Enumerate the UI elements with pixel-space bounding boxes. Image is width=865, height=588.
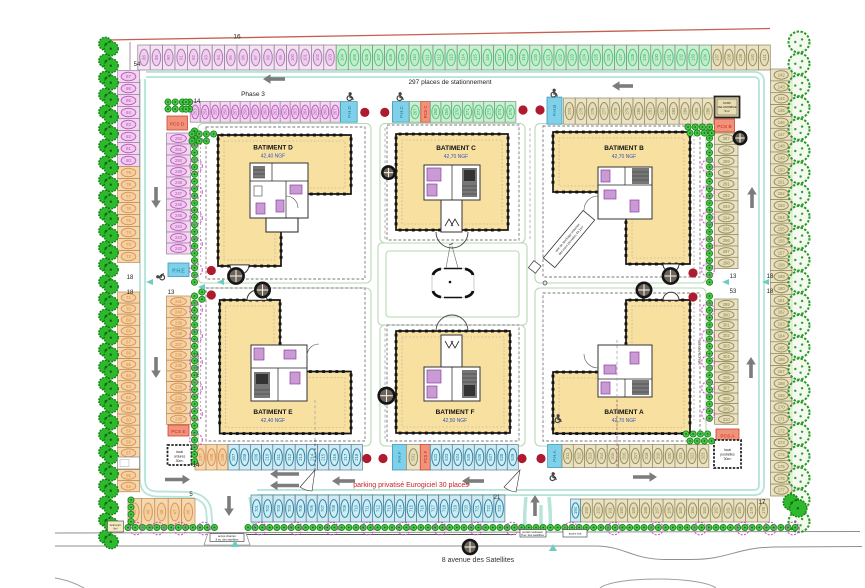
svg-text:232: 232	[175, 395, 183, 400]
svg-text:311: 311	[565, 452, 570, 459]
svg-text:121: 121	[545, 53, 550, 61]
svg-text:722: 722	[486, 504, 491, 512]
svg-text:214: 214	[309, 453, 314, 461]
svg-text:211: 211	[276, 453, 281, 460]
svg-text:720: 720	[464, 504, 469, 512]
svg-text:102: 102	[315, 53, 320, 61]
svg-text:53: 53	[730, 289, 737, 295]
svg-text:141: 141	[762, 53, 767, 61]
svg-text:106: 106	[364, 53, 369, 61]
svg-text:BATIMENT C: BATIMENT C	[436, 145, 476, 152]
svg-text:280: 280	[636, 107, 641, 115]
svg-text:VELOS ROUTE: VELOS ROUTE	[196, 352, 200, 378]
svg-text:212: 212	[287, 453, 292, 461]
svg-text:712: 712	[375, 504, 380, 512]
svg-text:238: 238	[209, 453, 214, 461]
svg-text:accès nuit: accès nuit	[569, 532, 582, 536]
svg-text:297 places de stationnement: 297 places de stationnement	[408, 79, 491, 86]
svg-text:705: 705	[298, 504, 303, 512]
svg-text:160: 160	[778, 286, 786, 291]
svg-text:Phase 3: Phase 3	[241, 91, 265, 98]
svg-text:16: 16	[233, 34, 241, 41]
svg-text:17: 17	[759, 500, 766, 506]
svg-text:P.H.C: P.H.C	[399, 105, 404, 117]
svg-text:BATIMENT F: BATIMENT F	[436, 409, 475, 416]
svg-text:181: 181	[725, 506, 730, 514]
svg-text:103: 103	[327, 53, 332, 61]
svg-text:262: 262	[283, 108, 288, 116]
svg-text:314: 314	[599, 452, 604, 460]
svg-text:233: 233	[175, 385, 183, 390]
svg-text:13: 13	[730, 274, 737, 280]
svg-text:81: 81	[126, 146, 131, 151]
svg-text:147: 147	[778, 132, 786, 137]
svg-text:42,40 NGF: 42,40 NGF	[261, 154, 285, 160]
svg-text:260: 260	[263, 108, 268, 116]
svg-text:142: 142	[778, 73, 786, 78]
svg-text:74: 74	[126, 230, 131, 235]
svg-text:PCS C: PCS C	[423, 106, 428, 119]
svg-text:98: 98	[265, 55, 270, 60]
svg-text:529: 529	[510, 453, 515, 461]
svg-text:285: 285	[694, 107, 699, 115]
svg-text:301: 301	[723, 323, 731, 328]
svg-text:157: 157	[778, 250, 786, 255]
svg-text:183: 183	[702, 506, 707, 514]
svg-text:261: 261	[273, 108, 278, 116]
svg-text:193: 193	[584, 506, 589, 514]
svg-text:133: 133	[691, 53, 696, 61]
svg-text:163: 163	[778, 322, 786, 327]
svg-text:312: 312	[576, 452, 581, 460]
svg-text:127: 127	[618, 53, 623, 61]
svg-text:84: 84	[126, 110, 131, 115]
svg-text:299: 299	[723, 302, 731, 307]
svg-text:94: 94	[216, 55, 221, 60]
svg-text:207: 207	[231, 453, 236, 461]
svg-text:175: 175	[778, 464, 786, 469]
svg-text:322: 322	[689, 452, 694, 460]
svg-text:279: 279	[625, 107, 630, 115]
svg-text:718: 718	[442, 504, 447, 512]
svg-text:236: 236	[175, 353, 183, 358]
svg-text:170: 170	[778, 405, 786, 410]
svg-text:255: 255	[213, 108, 218, 116]
svg-text:64: 64	[126, 373, 131, 378]
svg-text:275: 275	[578, 107, 583, 115]
svg-text:254: 254	[203, 108, 208, 116]
svg-text:303: 303	[723, 344, 731, 349]
svg-text:99: 99	[278, 55, 283, 60]
svg-text:143: 143	[778, 84, 786, 89]
svg-text:703: 703	[276, 504, 281, 512]
svg-text:149: 149	[778, 156, 786, 161]
svg-text:18: 18	[767, 274, 774, 280]
svg-text:209: 209	[253, 453, 258, 461]
svg-text:69: 69	[126, 317, 131, 322]
svg-text:215: 215	[321, 453, 326, 461]
svg-text:P.H.B: P.H.B	[552, 105, 557, 116]
svg-text:85: 85	[126, 98, 131, 103]
svg-text:704: 704	[287, 504, 292, 512]
svg-text:283: 283	[671, 107, 676, 115]
svg-text:276: 276	[590, 107, 595, 115]
svg-text:104: 104	[340, 53, 345, 61]
svg-text:161: 161	[778, 298, 786, 303]
svg-text:5m²: 5m²	[724, 109, 729, 113]
svg-text:80: 80	[126, 158, 131, 163]
svg-text:174: 174	[778, 452, 786, 457]
svg-text:P.H.F: P.H.F	[397, 451, 402, 462]
svg-text:252: 252	[175, 136, 183, 141]
svg-text:525: 525	[466, 453, 471, 461]
svg-text:128: 128	[630, 53, 635, 61]
svg-text:123: 123	[570, 53, 575, 61]
svg-text:270: 270	[454, 108, 459, 116]
svg-text:46: 46	[186, 509, 191, 514]
svg-text:13: 13	[168, 290, 175, 296]
svg-text:295: 295	[723, 227, 731, 232]
svg-text:49: 49	[146, 509, 151, 514]
svg-text:194: 194	[573, 506, 578, 514]
svg-text:208: 208	[242, 453, 247, 461]
svg-text:70: 70	[126, 306, 131, 311]
svg-text:90: 90	[166, 55, 171, 60]
svg-text:18: 18	[127, 290, 134, 296]
svg-text:298: 298	[723, 261, 731, 266]
svg-text:96: 96	[241, 55, 246, 60]
svg-text:706: 706	[309, 504, 314, 512]
svg-text:171: 171	[778, 417, 786, 422]
svg-text:192: 192	[596, 506, 601, 514]
svg-text:54: 54	[134, 62, 141, 68]
svg-text:88: 88	[141, 55, 146, 60]
svg-text:145: 145	[778, 108, 786, 113]
svg-text:61: 61	[126, 406, 131, 411]
svg-text:710: 710	[353, 504, 358, 512]
svg-text:83: 83	[126, 122, 131, 127]
svg-text:319: 319	[655, 452, 660, 460]
svg-text:158: 158	[778, 262, 786, 267]
svg-text:parking privatisé Eurogiciel 3: parking privatisé Eurogiciel 30 places	[353, 482, 469, 489]
svg-text:8 avenue des Satellites: 8 avenue des Satellites	[442, 557, 515, 564]
svg-text:246: 246	[175, 202, 183, 207]
svg-text:275: 275	[508, 108, 513, 116]
svg-text:156: 156	[778, 239, 786, 244]
svg-text:95: 95	[228, 55, 233, 60]
svg-text:152: 152	[778, 191, 786, 196]
svg-text:42,70 NGF: 42,70 NGF	[612, 154, 636, 160]
svg-text:151: 151	[778, 179, 786, 184]
svg-text:BATIMENT A: BATIMENT A	[604, 409, 644, 416]
svg-text:185: 185	[678, 506, 683, 514]
svg-text:249: 249	[175, 169, 183, 174]
svg-text:75: 75	[126, 218, 131, 223]
svg-text:180: 180	[737, 506, 742, 514]
svg-text:87: 87	[126, 74, 131, 79]
svg-text:239: 239	[220, 453, 225, 461]
svg-text:708: 708	[331, 504, 336, 512]
svg-text:258: 258	[243, 108, 248, 116]
svg-text:76: 76	[126, 206, 131, 211]
svg-text:local: local	[724, 448, 731, 452]
svg-text:30m²: 30m²	[176, 459, 185, 463]
svg-text:BATIMENT D: BATIMENT D	[253, 145, 293, 152]
svg-text:179: 179	[749, 506, 754, 514]
svg-text:165: 165	[778, 345, 786, 350]
svg-text:173: 173	[778, 440, 786, 445]
svg-text:230: 230	[175, 417, 183, 422]
svg-text:68: 68	[126, 329, 131, 334]
svg-text:153: 153	[778, 203, 786, 208]
svg-text:702: 702	[265, 504, 270, 512]
svg-text:182: 182	[714, 506, 719, 514]
svg-text:265: 265	[313, 108, 318, 116]
svg-text:522: 522	[433, 453, 438, 461]
svg-text:323: 323	[701, 452, 706, 460]
svg-text:711: 711	[364, 504, 369, 511]
svg-text:306: 306	[723, 375, 731, 380]
svg-text:140: 140	[750, 53, 755, 61]
svg-text:264: 264	[303, 108, 308, 116]
svg-text:62: 62	[126, 395, 131, 400]
svg-text:284: 284	[682, 107, 687, 115]
svg-text:257: 257	[233, 108, 238, 116]
svg-text:155: 155	[778, 227, 786, 232]
svg-text:709: 709	[342, 504, 347, 512]
svg-text:320: 320	[667, 452, 672, 460]
svg-text:63: 63	[126, 384, 131, 389]
svg-text:21: 21	[494, 495, 501, 501]
svg-text:47: 47	[172, 509, 177, 514]
svg-text:307: 307	[723, 385, 731, 390]
svg-text:269: 269	[444, 108, 449, 116]
svg-text:184: 184	[690, 506, 695, 514]
svg-text:243: 243	[175, 235, 183, 240]
svg-text:273: 273	[487, 108, 492, 116]
svg-text:291: 291	[723, 181, 731, 186]
svg-text:177: 177	[778, 488, 786, 493]
svg-text:PCS A: PCS A	[720, 434, 735, 440]
svg-text:238: 238	[175, 331, 183, 336]
svg-text:248: 248	[175, 180, 183, 185]
svg-text:55: 55	[126, 473, 131, 478]
svg-text:263: 263	[293, 108, 298, 116]
svg-text:274: 274	[567, 107, 572, 115]
svg-text:66: 66	[126, 351, 131, 356]
svg-text:292: 292	[723, 193, 731, 198]
svg-text:310: 310	[723, 417, 731, 422]
svg-text:523: 523	[444, 453, 449, 461]
svg-text:130: 130	[654, 53, 659, 61]
svg-text:278: 278	[613, 107, 618, 115]
svg-text:713: 713	[386, 504, 391, 512]
svg-text:148: 148	[778, 144, 786, 149]
svg-text:281: 281	[648, 107, 653, 115]
svg-text:300: 300	[723, 312, 731, 317]
svg-text:240: 240	[175, 310, 183, 315]
svg-text:72: 72	[126, 254, 131, 259]
svg-text:308: 308	[723, 396, 731, 401]
svg-text:309: 309	[723, 406, 731, 411]
svg-text:235: 235	[175, 363, 183, 368]
svg-text:321: 321	[678, 452, 683, 460]
svg-text:67: 67	[126, 340, 131, 345]
svg-text:57: 57	[126, 451, 131, 456]
svg-text:247: 247	[175, 191, 183, 196]
svg-text:77: 77	[126, 194, 131, 199]
svg-text:8m²: 8m²	[113, 528, 117, 531]
svg-text:BATIMENT E: BATIMENT E	[253, 409, 293, 416]
svg-text:316: 316	[622, 452, 627, 460]
svg-text:60: 60	[126, 417, 131, 422]
svg-text:277: 277	[602, 107, 607, 115]
svg-text:178: 178	[761, 506, 766, 514]
svg-text:14: 14	[194, 99, 201, 105]
svg-text:167: 167	[778, 369, 786, 374]
svg-text:109: 109	[400, 53, 405, 61]
svg-text:701: 701	[254, 504, 259, 512]
svg-text:241: 241	[175, 299, 183, 304]
svg-text:169: 169	[778, 393, 786, 398]
svg-text:250: 250	[175, 158, 183, 163]
svg-text:302: 302	[723, 333, 731, 338]
svg-text:114: 114	[461, 53, 466, 60]
svg-text:48: 48	[159, 509, 164, 514]
svg-text:294: 294	[723, 215, 731, 220]
svg-text:79: 79	[126, 170, 131, 175]
svg-text:315: 315	[610, 452, 615, 460]
svg-text:531: 531	[411, 453, 416, 461]
svg-text:59: 59	[126, 428, 131, 433]
svg-text:137: 137	[715, 53, 720, 61]
svg-text:176: 176	[778, 476, 786, 481]
svg-text:189: 189	[631, 506, 636, 514]
svg-text:146: 146	[778, 120, 786, 125]
svg-text:118: 118	[509, 53, 514, 60]
svg-text:524: 524	[455, 453, 460, 461]
svg-text:18: 18	[767, 289, 774, 295]
svg-text:110: 110	[412, 53, 417, 60]
svg-text:188: 188	[643, 506, 648, 514]
svg-text:318: 318	[644, 452, 649, 460]
svg-text:PCS E: PCS E	[171, 429, 185, 435]
svg-text:186: 186	[666, 506, 671, 514]
svg-text:288: 288	[723, 148, 731, 153]
svg-text:216: 216	[332, 453, 337, 461]
svg-text:244: 244	[175, 224, 183, 229]
svg-text:707: 707	[320, 504, 325, 512]
svg-text:129: 129	[642, 53, 647, 61]
svg-text:120: 120	[533, 53, 538, 61]
svg-text:PCS F: PCS F	[423, 450, 428, 463]
svg-text:719: 719	[453, 504, 458, 512]
svg-text:231: 231	[175, 406, 183, 411]
svg-text:113: 113	[449, 53, 454, 60]
svg-text:293: 293	[723, 204, 731, 209]
svg-text:237: 237	[198, 453, 203, 461]
svg-text:723: 723	[497, 504, 502, 512]
svg-text:P.H.D: P.H.D	[347, 105, 352, 117]
svg-text:162: 162	[778, 310, 786, 315]
svg-text:287: 287	[723, 136, 731, 141]
svg-text:289: 289	[723, 159, 731, 164]
svg-text:117: 117	[497, 53, 502, 60]
svg-text:54: 54	[126, 484, 131, 489]
svg-text:527: 527	[488, 453, 493, 461]
svg-text:65: 65	[126, 362, 131, 367]
svg-text:297: 297	[723, 249, 731, 254]
svg-text:78: 78	[126, 182, 131, 187]
svg-text:42,70 NGF: 42,70 NGF	[612, 418, 636, 424]
svg-text:190: 190	[619, 506, 624, 514]
svg-text:131: 131	[666, 53, 671, 61]
svg-text:122: 122	[557, 53, 562, 61]
svg-text:166: 166	[778, 357, 786, 362]
svg-text:210: 210	[265, 453, 270, 461]
svg-text:717: 717	[431, 504, 436, 512]
svg-text:124: 124	[582, 53, 587, 61]
svg-text:317: 317	[633, 452, 638, 460]
svg-text:191: 191	[607, 506, 612, 514]
svg-text:58: 58	[126, 439, 131, 444]
svg-text:282: 282	[659, 107, 664, 115]
svg-text:111: 111	[424, 54, 429, 61]
svg-text:272: 272	[476, 108, 481, 116]
svg-text:234: 234	[175, 374, 183, 379]
svg-text:237: 237	[175, 342, 183, 347]
svg-text:716: 716	[420, 504, 425, 512]
svg-text:714: 714	[397, 504, 402, 512]
svg-text:304: 304	[723, 354, 731, 359]
svg-text:526: 526	[477, 453, 482, 461]
svg-text:164: 164	[778, 333, 786, 338]
svg-text:245: 245	[175, 213, 183, 218]
svg-text:97: 97	[253, 55, 258, 60]
svg-text:305: 305	[723, 365, 731, 370]
svg-text:P.H.E: P.H.E	[172, 269, 185, 275]
svg-text:105: 105	[352, 53, 357, 61]
svg-text:159: 159	[778, 274, 786, 279]
svg-text:239: 239	[175, 320, 183, 325]
svg-text:112: 112	[436, 53, 441, 60]
svg-text:138: 138	[726, 53, 731, 61]
svg-text:139: 139	[738, 53, 743, 61]
svg-text:ordures: ordures	[174, 455, 186, 459]
svg-text:267: 267	[333, 108, 338, 116]
svg-text:73: 73	[126, 242, 131, 247]
svg-text:259: 259	[253, 108, 258, 116]
svg-text:313: 313	[588, 452, 593, 460]
svg-text:218: 218	[354, 453, 359, 461]
svg-text:P.H.A: P.H.A	[552, 449, 557, 461]
svg-text:18: 18	[127, 275, 134, 281]
svg-text:115: 115	[473, 53, 478, 60]
svg-text:8 av. des satellites: 8 av. des satellites	[521, 533, 544, 537]
svg-text:14: 14	[193, 463, 200, 469]
svg-text:poubelles: poubelles	[720, 453, 735, 457]
svg-text:253: 253	[193, 108, 198, 116]
svg-text:93: 93	[203, 55, 208, 60]
svg-text:116: 116	[485, 53, 490, 60]
svg-text:217: 217	[343, 453, 348, 461]
svg-text:242: 242	[175, 246, 183, 251]
svg-text:30m²: 30m²	[724, 457, 733, 461]
svg-text:42,70 NGF: 42,70 NGF	[444, 154, 468, 160]
svg-text:89: 89	[154, 55, 159, 60]
svg-text:721: 721	[475, 504, 480, 512]
svg-text:125: 125	[594, 53, 599, 61]
